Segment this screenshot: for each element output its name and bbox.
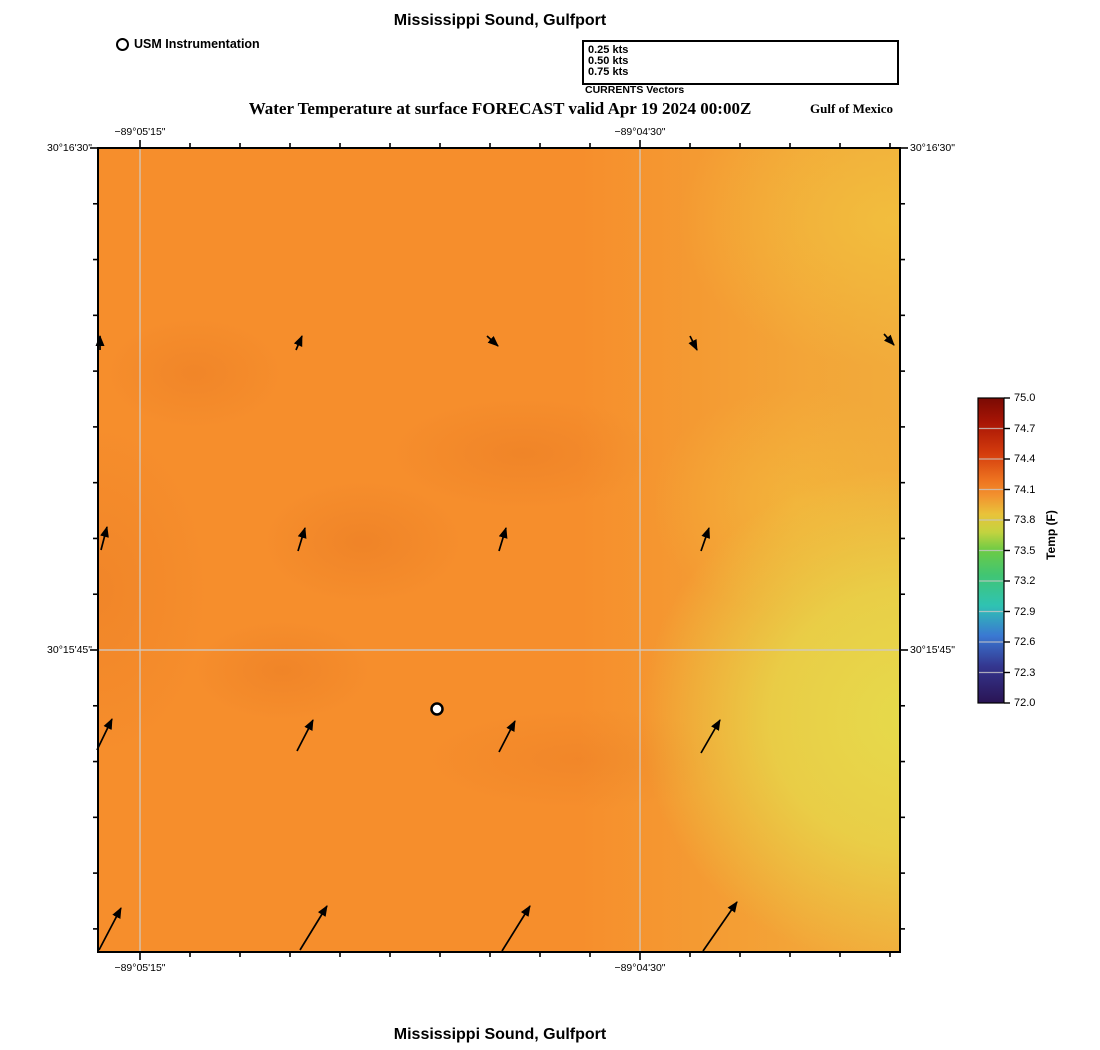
current-vector xyxy=(499,721,515,752)
station-legend-icon xyxy=(116,38,129,51)
colorbar-tick-label: 72.9 xyxy=(1014,606,1035,618)
y-tick-label-left: 30°15'45" xyxy=(0,644,92,656)
colorbar-tick-label: 72.3 xyxy=(1014,667,1035,679)
current-vector xyxy=(690,336,697,350)
current-vector xyxy=(298,528,305,551)
current-vector xyxy=(101,527,107,550)
colorbar xyxy=(978,398,1010,703)
current-vector xyxy=(701,720,720,753)
y-tick-label-right: 30°16'30" xyxy=(910,142,955,154)
x-tick-label-bottom: −89°05'15" xyxy=(95,962,185,974)
current-vector xyxy=(297,720,313,751)
forecast-subtitle: Water Temperature at surface FORECAST va… xyxy=(98,99,902,119)
y-tick-label-left: 30°16'30" xyxy=(0,142,92,154)
current-vector xyxy=(499,528,506,551)
colorbar-tick-label: 75.0 xyxy=(1014,392,1035,404)
current-vector xyxy=(487,336,498,346)
current-vector xyxy=(884,334,894,345)
colorbar-tick-label: 74.7 xyxy=(1014,423,1035,435)
current-vector xyxy=(703,902,737,951)
vector-legend-caption: CURRENTS Vectors xyxy=(585,84,684,96)
x-tick-label-top: −89°05'15" xyxy=(95,126,185,138)
colorbar-tick-label: 74.1 xyxy=(1014,484,1035,496)
colorbar-title: Temp (F) xyxy=(1044,495,1058,575)
station-legend-label: USM Instrumentation xyxy=(134,37,260,51)
current-vector xyxy=(701,528,709,551)
x-tick-label-bottom: −89°04'30" xyxy=(595,962,685,974)
colorbar-tick-label: 73.8 xyxy=(1014,514,1035,526)
page-title: Mississippi Sound, Gulfport xyxy=(98,12,902,30)
plot-canvas xyxy=(0,0,1100,1050)
footer-title: Mississippi Sound, Gulfport xyxy=(98,1026,902,1044)
colorbar-tick-label: 72.6 xyxy=(1014,636,1035,648)
colorbar-tick-label: 74.4 xyxy=(1014,453,1035,465)
current-vector xyxy=(99,908,121,950)
current-vector xyxy=(502,906,530,951)
current-vector xyxy=(97,719,112,750)
colorbar-tick-label: 73.5 xyxy=(1014,545,1035,557)
current-vector xyxy=(296,336,302,350)
y-tick-label-right: 30°15'45" xyxy=(910,644,955,656)
colorbar-tick-label: 72.0 xyxy=(1014,697,1035,709)
current-vector xyxy=(300,906,327,950)
current-vectors xyxy=(97,50,894,951)
region-label: Gulf of Mexico xyxy=(810,101,893,117)
x-tick-label-top: −89°04'30" xyxy=(595,126,685,138)
station-marker xyxy=(432,704,443,715)
vector-scale-legend: 0.25 kts 0.50 kts 0.75 kts xyxy=(582,40,899,85)
scale-label-075: 0.75 kts xyxy=(588,67,628,78)
colorbar-tick-label: 73.2 xyxy=(1014,575,1035,587)
forecast-plot-page: Mississippi Sound, Gulfport USM Instrume… xyxy=(0,0,1100,1050)
